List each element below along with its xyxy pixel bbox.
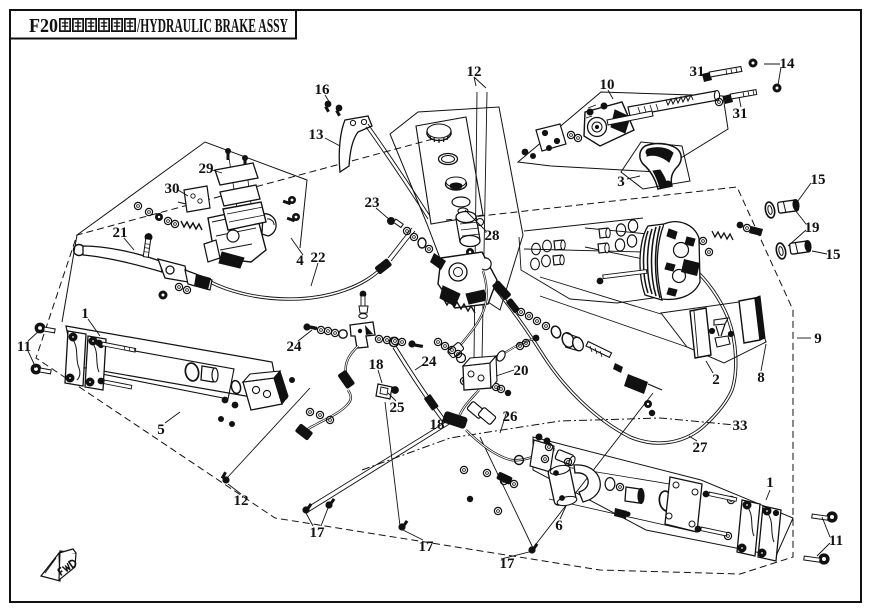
svg-text:13: 13 — [309, 127, 324, 143]
svg-text:24: 24 — [287, 339, 303, 355]
svg-text:5: 5 — [157, 422, 165, 438]
svg-text:21: 21 — [113, 225, 128, 241]
svg-text:17: 17 — [310, 525, 326, 541]
svg-text:10: 10 — [600, 77, 615, 93]
svg-text:8: 8 — [757, 370, 765, 386]
svg-text:31: 31 — [733, 106, 748, 122]
svg-text:15: 15 — [811, 172, 826, 188]
svg-text:3: 3 — [617, 174, 625, 190]
svg-text:16: 16 — [315, 82, 331, 98]
svg-text:27: 27 — [693, 440, 709, 456]
svg-text:2: 2 — [712, 372, 720, 388]
svg-text:25: 25 — [390, 400, 405, 416]
svg-text:9: 9 — [814, 331, 822, 347]
svg-text:11: 11 — [829, 533, 843, 549]
svg-text:19: 19 — [805, 220, 820, 236]
svg-text:30: 30 — [165, 181, 180, 197]
svg-text:14: 14 — [780, 56, 796, 72]
svg-text:28: 28 — [485, 228, 500, 244]
svg-text:29: 29 — [199, 161, 214, 177]
svg-text:1: 1 — [766, 475, 774, 491]
svg-text:31: 31 — [690, 64, 705, 80]
svg-text:24: 24 — [422, 354, 438, 370]
svg-text:/HYDRAULIC BRAKE ASSY: /HYDRAULIC BRAKE ASSY — [136, 15, 288, 37]
svg-text:12: 12 — [234, 493, 249, 509]
svg-text:6: 6 — [555, 518, 563, 534]
svg-text:20: 20 — [514, 363, 529, 379]
svg-text:18: 18 — [369, 357, 384, 373]
svg-text:F20: F20 — [29, 15, 58, 37]
svg-text:4: 4 — [296, 253, 304, 269]
svg-text:15: 15 — [826, 247, 841, 263]
svg-text:33: 33 — [733, 418, 748, 434]
svg-text:17: 17 — [419, 539, 435, 555]
svg-text:18: 18 — [430, 417, 445, 433]
svg-text:1: 1 — [81, 306, 89, 322]
